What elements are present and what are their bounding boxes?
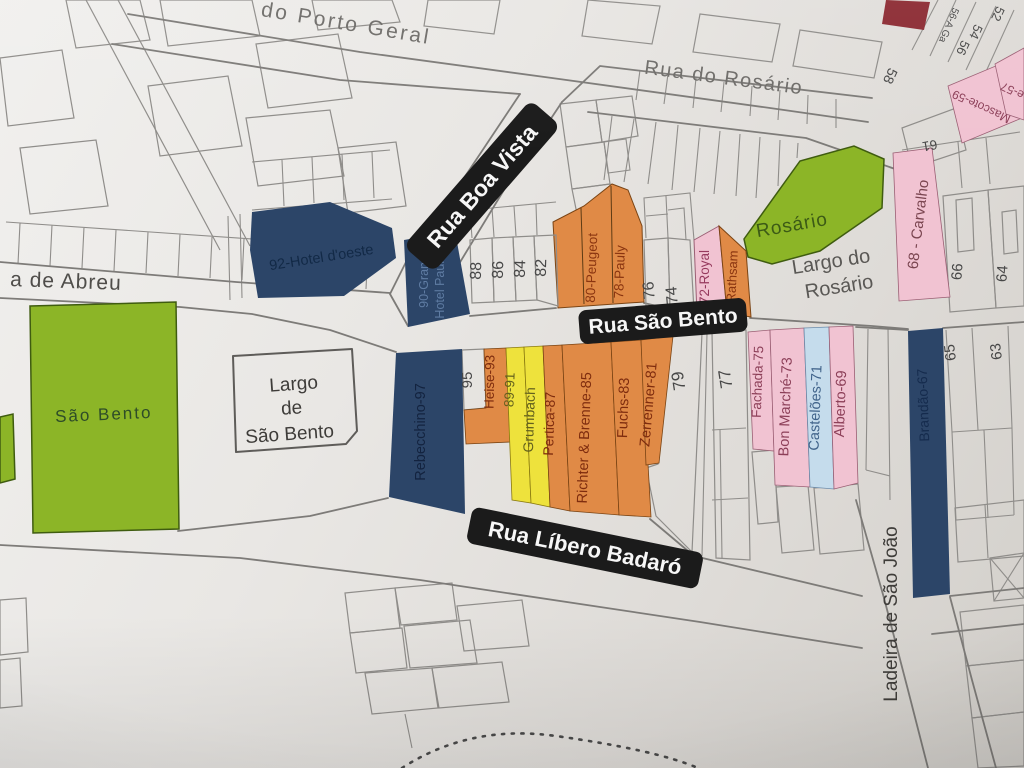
lot-label-84: 84: [512, 260, 530, 278]
lot-label-64: 64: [993, 265, 1011, 283]
pill-rua-libero-badaro: Rua Líbero Badaró: [466, 506, 705, 589]
lot-label-56a: 56-A Ga: [936, 6, 961, 44]
lot-label-74: 74: [663, 286, 681, 305]
lot-label-63: 63: [987, 342, 1006, 361]
lot-label-82: 82: [533, 259, 551, 277]
lot-label-61: 61: [921, 137, 938, 154]
building-label-pertica: Pertica-87: [540, 391, 558, 456]
building-label-casteloes: Castelões-71: [807, 365, 826, 451]
lot-cluster: [644, 193, 694, 240]
lot: [560, 100, 602, 147]
lot: [20, 140, 108, 214]
building-label-rebecchino: Rebecchino-97: [413, 383, 429, 481]
lot-label-79: 79: [668, 370, 690, 392]
lot-77-inner: [702, 333, 748, 558]
building-label-brandao: Brandão-67: [914, 368, 933, 442]
map-photo: do Porto Geral Rua do Rosário a de Abreu…: [0, 0, 1024, 768]
lot: [793, 30, 882, 78]
building-label-89-91: 89-91: [501, 372, 517, 407]
lot-lines: [866, 328, 890, 500]
lot-strips: [604, 116, 798, 198]
building-label-heise: Heise-93: [482, 355, 498, 409]
lot-label-58: 58: [880, 66, 901, 87]
dotted-boundary: [402, 733, 698, 768]
street-libero-south: [0, 545, 862, 648]
area-label-largo-sb-1: Largo: [269, 372, 319, 396]
area-label-largo-sb-2: de: [280, 397, 303, 419]
lot: [345, 588, 400, 633]
map-canvas: do Porto Geral Rua do Rosário a de Abreu…: [0, 0, 1024, 768]
lot-label-65: 65: [941, 343, 960, 362]
lot: [1002, 210, 1018, 254]
street-label-ladeira-sao-joao: Ladeira de São João: [881, 526, 902, 701]
lot-label-76: 76: [640, 281, 658, 300]
lot-label-66: 66: [948, 263, 966, 281]
street-porto-geral-north: [128, 14, 868, 122]
lot: [0, 598, 28, 655]
building-green-fragment: [0, 414, 15, 483]
lot-line: [86, 0, 220, 250]
lot: [395, 583, 457, 625]
lot-label-56: 56: [953, 38, 973, 57]
lot: [776, 485, 814, 553]
lot-label-77: 77: [715, 368, 737, 390]
lot: [0, 658, 22, 708]
lot: [246, 110, 344, 186]
lot-77: [712, 330, 750, 560]
lot: [960, 605, 1024, 666]
street-label-rua-boa-vista: Rua Boa Vista: [422, 119, 543, 253]
lot: [693, 14, 780, 62]
building-label-royal: 72-Royal: [697, 250, 712, 304]
street-label-de-abreu: a de Abreu: [10, 268, 122, 295]
lot-line: [118, 0, 250, 246]
lot: [566, 142, 610, 189]
lot-label-95: 95: [459, 372, 476, 389]
lot: [432, 662, 509, 708]
lot: [365, 668, 438, 714]
lot: [0, 50, 74, 126]
building-label-fuchs: Fuchs-83: [615, 377, 633, 438]
lot: [582, 0, 660, 44]
buildings-colored: [0, 0, 1024, 598]
lot: [350, 628, 407, 673]
lot: [424, 0, 500, 34]
pill-rua-boa-vista: Rua Boa Vista: [403, 100, 560, 273]
lot: [814, 484, 864, 554]
lot: [988, 186, 1024, 308]
street-porto-geral-south: [112, 44, 520, 94]
lot: [972, 712, 1024, 768]
lot-label-86: 86: [490, 261, 508, 279]
lot: [160, 0, 260, 46]
lot-label-88: 88: [468, 262, 486, 280]
building-label-peugeot: 80-Peugeot: [583, 232, 600, 303]
lot-label-54: 54: [966, 22, 986, 41]
building-label-pauly: 78-Pauly: [611, 245, 628, 299]
street-libero-east-south: [932, 624, 1024, 634]
lot: [956, 198, 974, 252]
building-label-grumbach: Grumbach: [520, 387, 538, 453]
building-label-fachada: Fachada-75: [749, 346, 767, 419]
area-label-largo-sb-3: São Bento: [245, 421, 335, 448]
building-label-alberto: Alberto-69: [832, 370, 850, 437]
lot-line: [405, 714, 412, 748]
lot: [457, 600, 529, 651]
lot: [404, 620, 477, 668]
street-ladeira-east: [950, 597, 996, 768]
lot: [256, 34, 352, 108]
building-maroon: [882, 0, 930, 30]
street-label-porto-geral: do Porto Geral: [260, 0, 433, 49]
street-libero-east-north: [950, 588, 1024, 596]
lot-xbox-diagonals: [990, 553, 1024, 601]
lot-label-52: 52: [988, 4, 1008, 23]
